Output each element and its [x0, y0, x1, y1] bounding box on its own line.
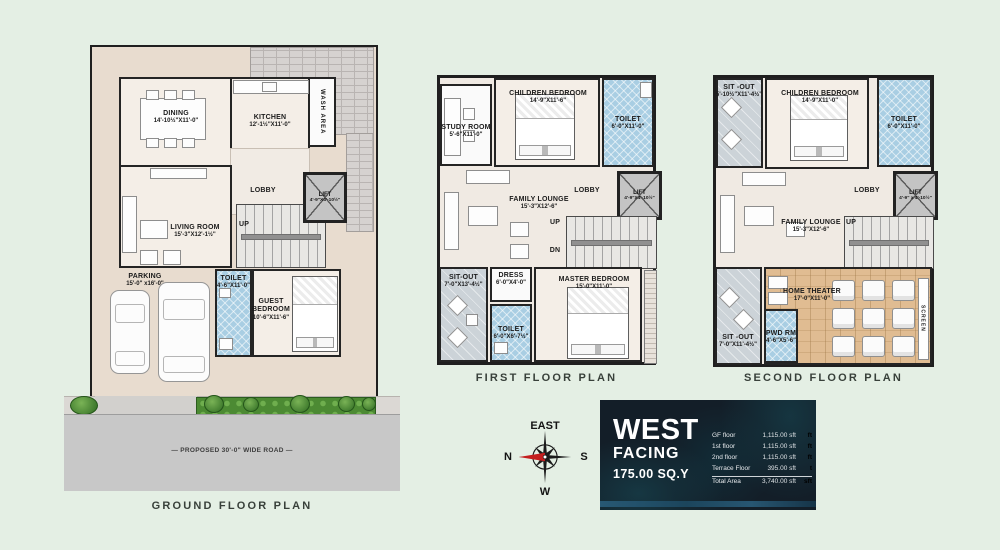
plan-title-text: SECOND FLOOR PLAN [744, 372, 903, 384]
toilet-fixture [640, 82, 652, 98]
compass-text: W [540, 486, 550, 498]
area-row-value: 1,115.00 sft [760, 432, 796, 439]
area-row-label: 1st floor [712, 443, 760, 450]
bush [338, 396, 355, 412]
lift-g: LIFT 4'-9"X4'-10½" [303, 172, 347, 223]
study-desk [444, 98, 461, 156]
screen-text: SCREEN [920, 305, 926, 332]
driveway [95, 396, 197, 414]
bed-children-f1 [515, 94, 575, 160]
armchair [786, 222, 805, 237]
lift-label-f2: LIFT 4'-9" x 4'-10½" [899, 190, 932, 202]
tv-cabinet [150, 168, 207, 179]
lift-f2: LIFT 4'-9" x 4'-10½" [893, 171, 938, 220]
toilet-fixture [494, 342, 508, 354]
armchair [510, 244, 529, 259]
area-row-unit: sft [796, 478, 812, 485]
dining-table [140, 98, 206, 140]
compass: EAST N S W [495, 412, 595, 504]
label-screen: SCREEN [916, 278, 929, 358]
lift-label-g: LIFT 4'-9"X4'-10½" [310, 192, 341, 204]
bush [243, 397, 259, 412]
area-row-unit: ft [796, 443, 812, 450]
balcony-hatch-f1 [644, 270, 657, 364]
plan-title-first: FIRST FLOOR PLAN [437, 372, 656, 384]
area-row-label: Terrace Floor [712, 465, 760, 472]
bed-master [567, 287, 629, 359]
coffee-table [468, 206, 498, 226]
room-dress [490, 267, 532, 302]
armchair [163, 250, 181, 265]
kitchen-sink [262, 82, 277, 92]
area-row: 1st floor 1,115.00 sft ft [712, 443, 812, 454]
study-chair [463, 130, 475, 142]
theater-sofa [768, 292, 788, 305]
car [158, 282, 210, 382]
toilet-wc [219, 338, 233, 350]
area-row-label: 2nd floor [712, 454, 760, 461]
bush [70, 396, 98, 415]
room-dims: 4'-9" x 4'-10½" [899, 196, 932, 201]
area-row: GF floor 1,115.00 sft ft [712, 432, 812, 443]
side-yard-paving [346, 133, 374, 232]
lift-label-f1: LIFT 4'-9"X4'-10½" [624, 190, 655, 202]
bed-guest [292, 276, 338, 352]
compass-text: N [504, 451, 512, 463]
road-label: — PROPOSED 30'-0" WIDE ROAD — [64, 447, 400, 454]
area-row-label: Total Area [712, 478, 760, 485]
dining-chair [164, 90, 177, 100]
room-pwd [764, 309, 798, 363]
theater-seat [862, 336, 885, 357]
facing-heading: WEST FACING 175.00 SQ.Y [613, 417, 699, 481]
bed-children-f2 [790, 95, 848, 161]
floor-plan-sheet: LIFT 4'-9"X4'-10½" DINING 14'-10½"X11'-0… [0, 0, 1000, 550]
bush [204, 395, 224, 413]
theater-seat [892, 336, 915, 357]
room-toilet-f2 [877, 78, 932, 167]
stairs-f2 [844, 216, 934, 269]
sitout-table [466, 314, 478, 326]
study-chair [463, 108, 475, 120]
theater-seat [832, 308, 855, 329]
area-row-total: Total Area 3,740.00 sft sft [712, 476, 812, 489]
plan-title-ground: GROUND FLOOR PLAN [64, 500, 400, 512]
coffee-table [140, 220, 168, 239]
theater-seat [862, 280, 885, 301]
area-row-value: 3,740.00 sft [760, 478, 796, 485]
plot-area: 175.00 SQ.Y [613, 467, 699, 481]
dining-chair [146, 90, 159, 100]
theater-seat [832, 336, 855, 357]
sofa [122, 196, 137, 253]
armchair [510, 222, 529, 237]
theater-seat [892, 280, 915, 301]
compass-rose-icon [517, 429, 573, 485]
area-row-label: GF floor [712, 432, 760, 439]
facing-info-card: WEST FACING 175.00 SQ.Y GF floor 1,115.0… [600, 400, 816, 510]
room-name: WASH AREA [319, 89, 325, 134]
stairs-f1 [566, 216, 657, 269]
compass-n-label: N [501, 451, 515, 463]
area-row-unit: ft [796, 432, 812, 439]
lift-f1: LIFT 4'-9"X4'-10½" [617, 171, 662, 220]
toilet-sink [219, 288, 231, 298]
room-dims: 4'-9"X4'-10½" [624, 196, 655, 201]
area-row: 2nd floor 1,115.00 sft ft [712, 454, 812, 465]
area-row-unit: ft [796, 454, 812, 461]
compass-text: S [580, 451, 587, 463]
plan-title-second: SECOND FLOOR PLAN [713, 372, 934, 384]
theater-sofa [768, 276, 788, 289]
room-dims: 4'-9"X4'-10½" [310, 198, 341, 203]
area-row-unit: t [796, 465, 812, 472]
sofa [444, 192, 459, 250]
coffee-table [744, 206, 774, 226]
room-sitout-f2-top [716, 78, 763, 168]
facing-direction: WEST [613, 417, 699, 445]
compass-w-label: W [495, 486, 595, 498]
area-row-value: 1,115.00 sft [760, 443, 796, 450]
area-table: GF floor 1,115.00 sft ft 1st floor 1,115… [712, 432, 812, 489]
area-row-value: 1,115.00 sft [760, 454, 796, 461]
sofa [742, 172, 786, 186]
car [110, 290, 150, 374]
theater-seat [892, 308, 915, 329]
plan-title-text: FIRST FLOOR PLAN [476, 372, 618, 384]
sofa [466, 170, 510, 184]
plan-title-text: GROUND FLOOR PLAN [152, 500, 313, 512]
area-row: Terrace Floor 395.00 sft t [712, 465, 812, 476]
area-row-value: 395.00 sft [760, 465, 796, 472]
theater-seat [862, 308, 885, 329]
sofa [720, 195, 735, 253]
road-text: — PROPOSED 30'-0" WIDE ROAD — [171, 447, 292, 454]
dining-chair [182, 138, 195, 148]
compass-s-label: S [577, 451, 591, 463]
dining-chair [146, 138, 159, 148]
facing-word: FACING [613, 445, 699, 463]
dining-chair [164, 138, 177, 148]
theater-seat [832, 280, 855, 301]
dining-chair [182, 90, 195, 100]
bush [362, 397, 376, 411]
bush [290, 395, 310, 413]
room-sitout-f1 [439, 267, 488, 362]
room-label-wash-area: WASH AREA [308, 80, 336, 144]
armchair [140, 250, 158, 265]
